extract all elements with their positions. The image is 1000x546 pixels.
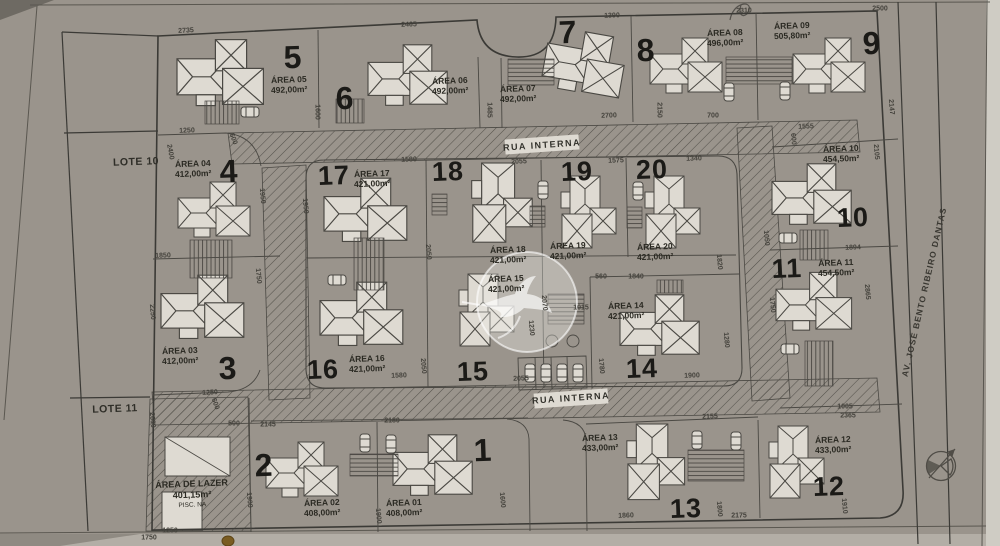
driveway-stripes <box>432 194 447 215</box>
car <box>781 344 799 354</box>
house-plan <box>793 38 865 93</box>
house-plan <box>620 295 699 356</box>
car <box>573 364 583 382</box>
car <box>241 107 259 117</box>
house-plan <box>627 424 685 500</box>
house-plan <box>645 176 700 248</box>
site-plan-drawing <box>0 0 1000 546</box>
car <box>541 364 551 382</box>
car <box>328 275 346 285</box>
car <box>360 434 370 452</box>
house-plan <box>772 164 851 225</box>
house-plan <box>266 442 338 497</box>
driveway-stripes <box>688 450 744 481</box>
driveway-stripes <box>530 206 545 227</box>
house-plan <box>650 38 722 93</box>
driveway-stripes <box>627 207 642 228</box>
house-plan <box>393 435 472 496</box>
house-plan <box>320 282 403 345</box>
car <box>731 432 741 450</box>
car <box>633 182 643 200</box>
car <box>780 82 790 100</box>
car <box>557 364 567 382</box>
house-plan <box>177 40 263 106</box>
car <box>386 435 396 453</box>
driveway-stripes <box>805 341 833 386</box>
car <box>724 83 734 101</box>
house-plan <box>324 178 407 241</box>
house-plan <box>776 272 852 330</box>
house-plan <box>561 176 616 248</box>
car <box>538 181 548 199</box>
driveway-stripes <box>190 240 232 278</box>
car <box>779 233 797 243</box>
driveway-stripes <box>800 230 828 260</box>
north-arrow-icon <box>927 449 956 481</box>
driveway-stripes <box>726 57 792 84</box>
house-plan <box>161 275 244 338</box>
site-plan-photo: RUA INTERNA RUA INTERNA AV. JOSÉ BENTO R… <box>0 0 1000 546</box>
driveway-stripes <box>657 280 683 293</box>
driveway-stripes <box>508 59 554 85</box>
house-plan <box>472 163 533 242</box>
driveway-stripes <box>336 99 364 123</box>
driveway-stripes <box>205 101 239 124</box>
house-plan <box>178 182 250 237</box>
driveway-stripes <box>350 454 398 476</box>
house-plan <box>368 45 447 106</box>
car <box>525 364 535 382</box>
driveway-stripes <box>354 238 384 290</box>
house-plan <box>769 426 824 498</box>
car <box>692 431 702 449</box>
